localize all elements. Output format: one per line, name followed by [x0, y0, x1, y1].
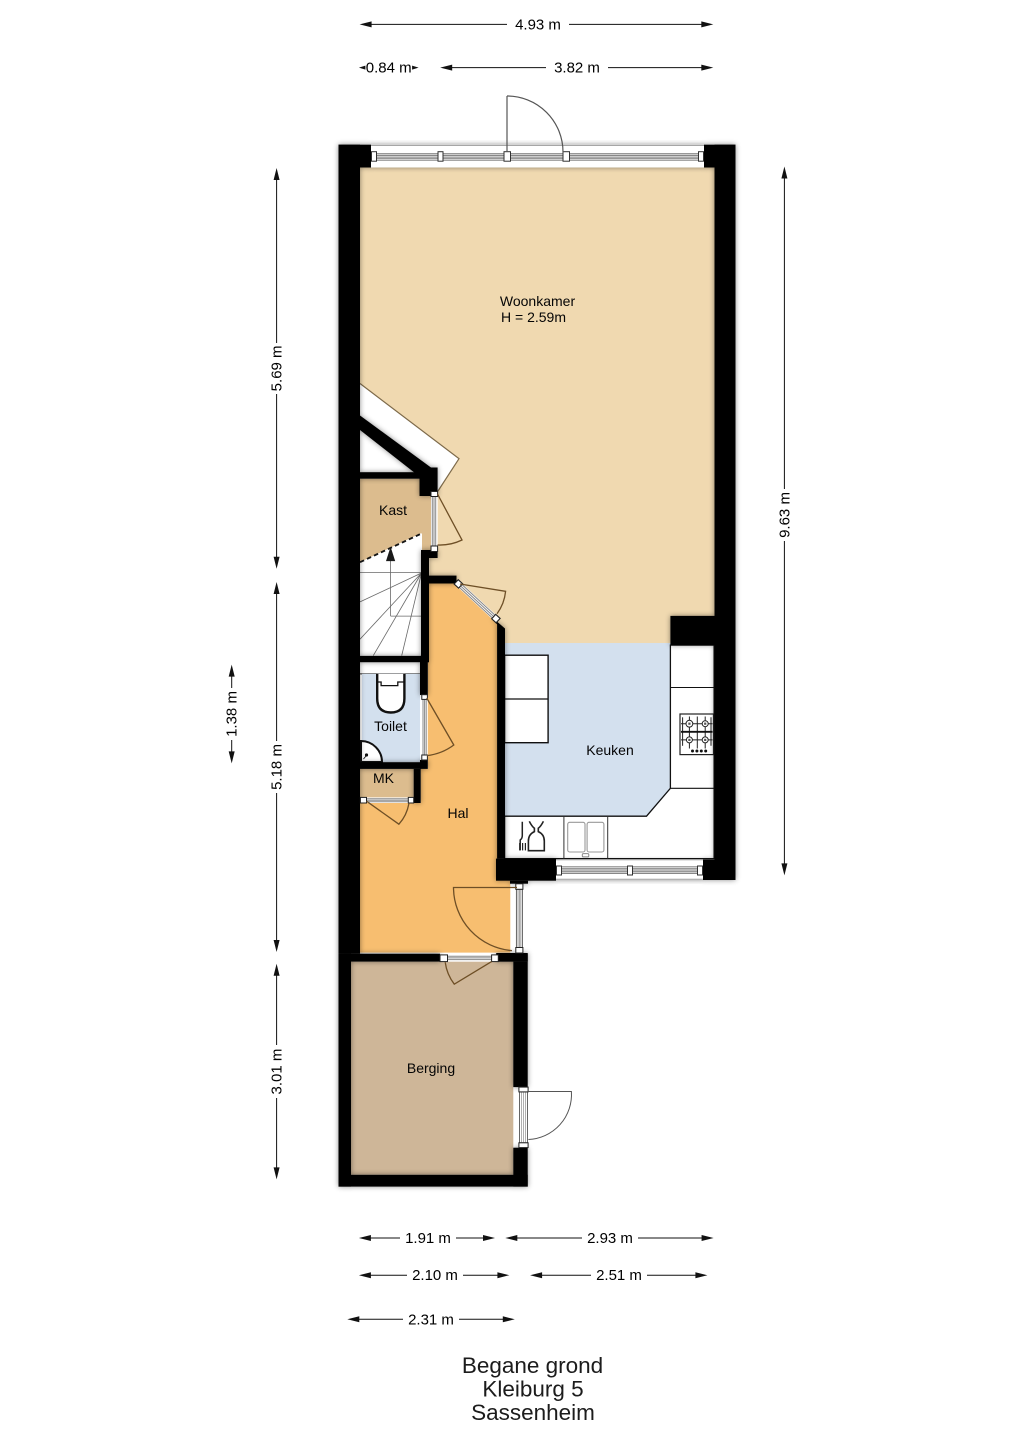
svg-text:2.10 m: 2.10 m	[412, 1267, 458, 1284]
svg-text:Sassenheim: Sassenheim	[471, 1400, 595, 1425]
svg-text:2.31 m: 2.31 m	[408, 1311, 454, 1328]
svg-text:Berging: Berging	[407, 1060, 455, 1076]
svg-text:MK: MK	[373, 770, 395, 786]
svg-text:Begane grond: Begane grond	[462, 1353, 603, 1378]
svg-text:H = 2.59m: H = 2.59m	[501, 309, 566, 325]
svg-text:2.51 m: 2.51 m	[596, 1267, 642, 1284]
svg-text:3.82 m: 3.82 m	[554, 60, 600, 77]
svg-text:1.38 m: 1.38 m	[224, 691, 241, 737]
svg-text:Kleiburg 5: Kleiburg 5	[482, 1377, 583, 1402]
svg-text:0.84 m: 0.84 m	[366, 60, 412, 77]
svg-text:9.63 m: 9.63 m	[776, 492, 793, 538]
svg-text:Kast: Kast	[379, 502, 407, 518]
svg-text:Toilet: Toilet	[374, 718, 407, 734]
svg-text:Hal: Hal	[447, 805, 468, 821]
svg-text:4.93 m: 4.93 m	[515, 16, 561, 33]
svg-text:5.18 m: 5.18 m	[269, 744, 286, 790]
svg-text:1.91 m: 1.91 m	[405, 1230, 451, 1247]
svg-text:2.93 m: 2.93 m	[587, 1230, 633, 1247]
svg-text:3.01 m: 3.01 m	[269, 1049, 286, 1095]
svg-text:Woonkamer: Woonkamer	[500, 293, 576, 309]
svg-text:5.69 m: 5.69 m	[269, 345, 286, 391]
svg-text:Keuken: Keuken	[586, 742, 633, 758]
